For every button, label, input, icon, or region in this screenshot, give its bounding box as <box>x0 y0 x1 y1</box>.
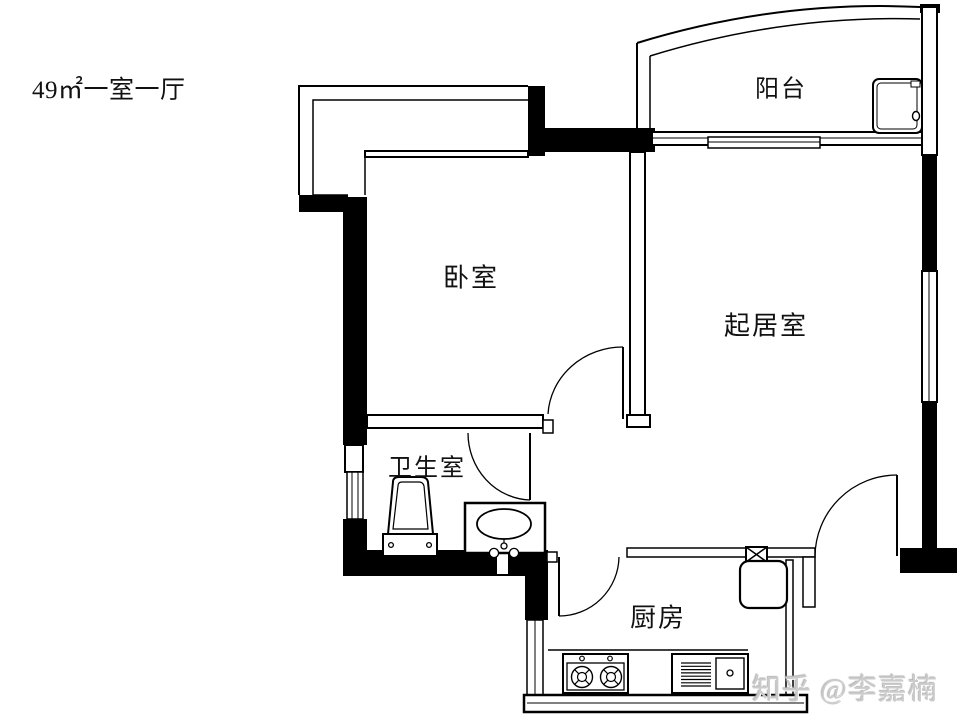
balcony-curve-inner <box>650 19 920 56</box>
bathroom-west-window <box>345 445 363 519</box>
toilet-icon <box>383 477 437 556</box>
wall-bay-pier <box>528 86 545 156</box>
wall-north-band <box>545 128 655 152</box>
wall-east-lower <box>922 402 937 550</box>
watermark: 知乎 @李嘉楠 <box>752 666 960 708</box>
bedroom-bath-wall-step <box>543 420 553 433</box>
bedroom-living-wall-foot <box>627 415 650 427</box>
kitchen-sink-icon <box>672 654 748 693</box>
bay-outer-line <box>299 86 528 195</box>
kitchen-north-wall-a <box>627 548 746 557</box>
room-label-living-room: 起居室 <box>724 306 808 343</box>
gas-stove-icon <box>563 654 628 693</box>
floor-plan: 49㎡一室一厅 阳台 卧室 起居室 卫生室 厨房 知乎 @李嘉楠 <box>0 0 960 720</box>
door-arc <box>548 347 623 414</box>
bedroom-north-wall <box>365 151 528 157</box>
balcony-right-wall <box>922 7 937 155</box>
living-east-window <box>922 271 937 402</box>
living-hall-door <box>548 347 623 419</box>
door-jamb-block <box>547 552 557 562</box>
flue-icon <box>746 547 767 562</box>
kitchen-west-window <box>527 620 543 697</box>
wall-east-base <box>900 548 957 573</box>
door-arc <box>559 557 619 616</box>
room-label-balcony: 阳台 <box>755 69 807 104</box>
wall-bay-stub <box>299 195 348 212</box>
balcony-curve-outer <box>637 6 920 43</box>
plan-title: 49㎡一室一厅 <box>32 70 186 106</box>
bedroom-living-wall <box>630 152 645 415</box>
floor-plan-drawing <box>0 0 960 720</box>
room-label-kitchen: 厨房 <box>630 598 686 635</box>
room-label-bathroom: 卫生室 <box>388 448 466 483</box>
bedroom-bath-wall <box>367 415 543 428</box>
door-arc <box>468 433 530 500</box>
bathroom-sink-icon <box>465 503 545 558</box>
kitchen-north-wall-b <box>767 548 815 557</box>
room-label-bedroom: 卧室 <box>443 258 499 295</box>
entry-stub-wall <box>803 557 815 607</box>
wall-east-upper <box>922 155 937 271</box>
wall-kitchen-west <box>525 550 548 620</box>
bathroom-door <box>468 433 530 500</box>
balcony-sliding-window <box>652 132 922 148</box>
bay-window <box>299 86 528 195</box>
kitchen-door <box>559 557 619 616</box>
washing-machine-icon <box>873 79 922 133</box>
partition-walls <box>367 152 815 697</box>
bay-inner-line <box>313 100 528 195</box>
door-arc <box>815 475 897 556</box>
wall-west-upper <box>343 197 367 445</box>
entry-door <box>815 475 897 556</box>
refrigerator-icon <box>740 561 787 608</box>
